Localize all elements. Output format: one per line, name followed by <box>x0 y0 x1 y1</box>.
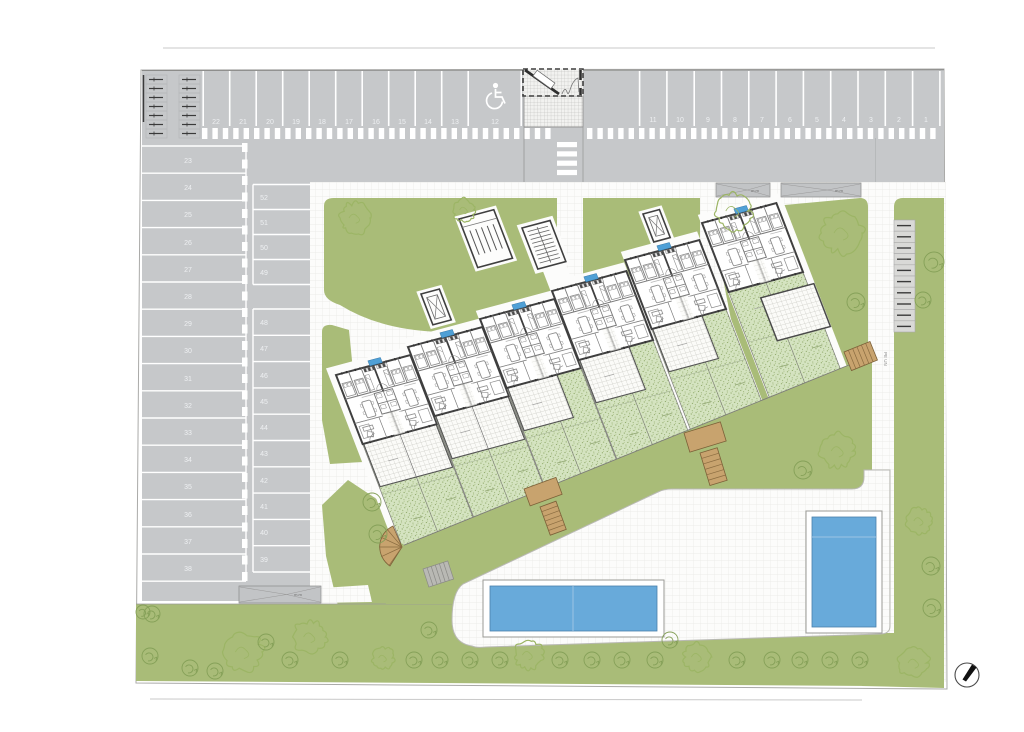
svg-text:39: 39 <box>260 557 268 564</box>
svg-text:9: 9 <box>706 117 710 124</box>
svg-text:5: 5 <box>815 117 819 124</box>
svg-text:30: 30 <box>184 348 192 355</box>
svg-text:49: 49 <box>260 270 268 277</box>
svg-text:2: 2 <box>897 117 901 124</box>
svg-text:31: 31 <box>184 376 192 383</box>
svg-text:46: 46 <box>260 373 268 380</box>
svg-text:24: 24 <box>184 185 192 192</box>
svg-text:27: 27 <box>184 267 192 274</box>
svg-text:17: 17 <box>345 119 353 126</box>
svg-text:4: 4 <box>842 117 846 124</box>
svg-text:35: 35 <box>184 484 192 491</box>
svg-text:1: 1 <box>924 117 928 124</box>
svg-text:28: 28 <box>184 294 192 301</box>
svg-text:50: 50 <box>260 245 268 252</box>
svg-text:34: 34 <box>184 457 192 464</box>
svg-text:29: 29 <box>184 321 192 328</box>
svg-text:37: 37 <box>184 539 192 546</box>
svg-text:6: 6 <box>788 117 792 124</box>
svg-text:41: 41 <box>260 504 268 511</box>
svg-text:10: 10 <box>676 117 684 124</box>
svg-text:21: 21 <box>239 119 247 126</box>
svg-text:38: 38 <box>184 566 192 573</box>
svg-text:33: 33 <box>184 430 192 437</box>
svg-text:45: 45 <box>260 399 268 406</box>
svg-text:25: 25 <box>184 212 192 219</box>
svg-text:52: 52 <box>260 195 268 202</box>
svg-text:m.m: m.m <box>835 188 843 193</box>
svg-text:m.m: m.m <box>294 592 302 597</box>
svg-text:15: 15 <box>398 119 406 126</box>
svg-text:23: 23 <box>184 158 192 165</box>
svg-text:8: 8 <box>733 117 737 124</box>
svg-text:42: 42 <box>260 478 268 485</box>
svg-text:44: 44 <box>260 425 268 432</box>
svg-text:32: 32 <box>184 403 192 410</box>
svg-text:13: 13 <box>451 119 459 126</box>
svg-text:PE UN: PE UN <box>883 352 888 366</box>
svg-text:12: 12 <box>491 119 499 126</box>
svg-text:16: 16 <box>372 119 380 126</box>
svg-text:51: 51 <box>260 220 268 227</box>
svg-text:48: 48 <box>260 320 268 327</box>
svg-text:36: 36 <box>184 512 192 519</box>
svg-text:14: 14 <box>424 119 432 126</box>
svg-text:26: 26 <box>184 240 192 247</box>
svg-text:19: 19 <box>292 119 300 126</box>
svg-text:m.m: m.m <box>751 188 759 193</box>
svg-text:11: 11 <box>649 117 656 124</box>
svg-text:18: 18 <box>318 119 326 126</box>
svg-text:3: 3 <box>869 117 873 124</box>
svg-text:47: 47 <box>260 346 268 353</box>
svg-text:20: 20 <box>266 119 274 126</box>
svg-text:22: 22 <box>212 119 220 126</box>
svg-text:7: 7 <box>760 117 764 124</box>
svg-text:40: 40 <box>260 530 268 537</box>
svg-text:43: 43 <box>260 451 268 458</box>
